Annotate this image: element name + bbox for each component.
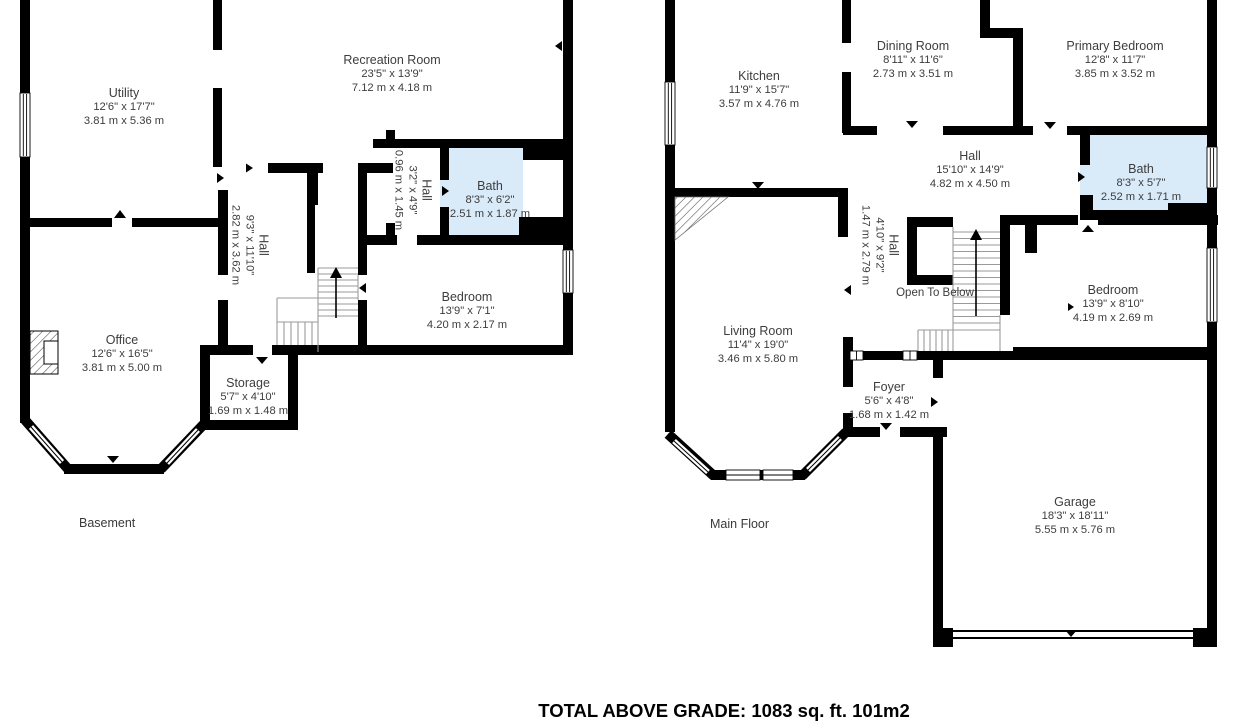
label-open-to-below: Open To Below [896,285,974,301]
room-label-utility: Utility 12'6" x 17'7" 3.81 m x 5.36 m [84,85,164,128]
room-label-living-room: Living Room 11'4" x 19'0" 3.46 m x 5.80 … [718,323,798,366]
room-name: Kitchen [719,68,799,84]
room-label-basement-bath: Bath 8'3" x 6'2" 2.51 m x 1.87 m [450,178,530,221]
room-label-basement-hall-small: Hall 3'2" x 4'9" 0.96 m x 1.45 m [392,150,435,230]
room-name: Office [82,332,162,348]
room-label-basement-bedroom: Bedroom 13'9" x 7'1" 4.20 m x 2.17 m [427,289,507,332]
room-dim-metric: 3.85 m x 3.52 m [1066,68,1163,82]
fireplace-icon [30,331,58,374]
room-dim-imperial: 23'5" x 13'9" [343,68,440,82]
room-dim-metric: 2.82 m x 3.62 m [229,205,243,285]
room-dim-imperial: 12'6" x 17'7" [84,101,164,115]
room-dim-imperial: 3'2" x 4'9" [405,150,419,230]
room-dim-metric: 5.55 m x 5.76 m [1035,524,1115,538]
room-dim-imperial: 11'9" x 15'7" [719,84,799,98]
room-name: Bath [450,178,530,194]
room-dim-metric: 2.52 m x 1.71 m [1101,191,1181,205]
floor-label-basement: Basement [79,516,135,530]
basement-plan [20,0,573,474]
room-name: Hall [256,205,272,285]
room-name: Bath [1101,161,1181,177]
room-dim-imperial: 8'11" x 11'6" [873,54,953,68]
room-dim-imperial: 5'7" x 4'10" [208,391,288,405]
room-name: Hall [930,148,1010,164]
room-label-recreation-room: Recreation Room 23'5" x 13'9" 7.12 m x 4… [343,52,440,95]
room-label-dining-room: Dining Room 8'11" x 11'6" 2.73 m x 3.51 … [873,38,953,81]
room-dim-metric: 4.82 m x 4.50 m [930,178,1010,192]
basement-bay-window [25,420,204,469]
room-name: Utility [84,85,164,101]
room-label-main-hall: Hall 15'10" x 14'9" 4.82 m x 4.50 m [930,148,1010,191]
basement-stairs [277,267,358,352]
room-name: Primary Bedroom [1066,38,1163,54]
room-dim-metric: 4.19 m x 2.69 m [1073,312,1153,326]
room-name: Garage [1035,494,1115,510]
room-dim-imperial: 8'3" x 6'2" [450,194,530,208]
room-label-main-hall-small: Hall 4'10" x 9'2" 1.47 m x 2.79 m [859,205,902,285]
room-name: Foyer [849,379,929,395]
total-above-grade-text: TOTAL ABOVE GRADE: 1083 sq. ft. 101m2 [538,700,909,722]
room-name: Open To Below [896,285,974,301]
room-dim-imperial: 18'3" x 18'11" [1035,510,1115,524]
living-room-bay-window [668,432,846,480]
room-dim-imperial: 8'3" x 5'7" [1101,177,1181,191]
room-name: Living Room [718,323,798,339]
room-label-office: Office 12'6" x 16'5" 3.81 m x 5.00 m [82,332,162,375]
room-dim-imperial: 5'6" x 4'8" [849,395,929,409]
floorplan-geometry [0,0,1240,720]
room-dim-metric: 3.46 m x 5.80 m [718,353,798,367]
room-dim-metric: 2.73 m x 3.51 m [873,68,953,82]
room-dim-metric: 3.81 m x 5.00 m [82,362,162,376]
room-dim-metric: 3.81 m x 5.36 m [84,115,164,129]
room-label-basement-hall: Hall 9'3" x 11'10" 2.82 m x 3.62 m [229,205,272,285]
room-dim-metric: 1.47 m x 2.79 m [859,205,873,285]
floor-label-main-floor: Main Floor [710,517,769,531]
room-label-kitchen: Kitchen 11'9" x 15'7" 3.57 m x 4.76 m [719,68,799,111]
room-name: Storage [208,375,288,391]
room-dim-imperial: 15'10" x 14'9" [930,164,1010,178]
room-dim-imperial: 4'10" x 9'2" [872,205,886,285]
room-dim-imperial: 9'3" x 11'10" [242,205,256,285]
room-dim-metric: 4.20 m x 2.17 m [427,319,507,333]
room-dim-imperial: 11'4" x 19'0" [718,339,798,353]
room-label-main-bedroom: Bedroom 13'9" x 8'10" 4.19 m x 2.69 m [1073,282,1153,325]
room-name: Hall [419,150,435,230]
kitchen-hatched-corner [675,197,728,240]
room-dim-metric: 1.68 m x 1.42 m [849,409,929,423]
room-name: Recreation Room [343,52,440,68]
room-name: Bedroom [1073,282,1153,298]
room-name: Bedroom [427,289,507,305]
room-dim-metric: 1.69 m x 1.48 m [208,405,288,419]
room-dim-imperial: 12'6" x 16'5" [82,348,162,362]
basement-walls [20,0,573,474]
room-label-foyer: Foyer 5'6" x 4'8" 1.68 m x 1.42 m [849,379,929,422]
room-dim-metric: 2.51 m x 1.87 m [450,208,530,222]
room-dim-metric: 0.96 m x 1.45 m [392,150,406,230]
room-dim-imperial: 13'9" x 7'1" [427,305,507,319]
room-dim-metric: 7.12 m x 4.18 m [343,82,440,96]
room-label-primary-bedroom: Primary Bedroom 12'8" x 11'7" 3.85 m x 3… [1066,38,1163,81]
room-label-storage: Storage 5'7" x 4'10" 1.69 m x 1.48 m [208,375,288,418]
room-name: Dining Room [873,38,953,54]
room-label-garage: Garage 18'3" x 18'11" 5.55 m x 5.76 m [1035,494,1115,537]
room-name: Hall [886,205,902,285]
room-dim-imperial: 13'9" x 8'10" [1073,298,1153,312]
basement-door-markers [107,41,562,463]
room-label-main-bath: Bath 8'3" x 5'7" 2.52 m x 1.71 m [1101,161,1181,204]
room-dim-metric: 3.57 m x 4.76 m [719,98,799,112]
room-dim-imperial: 12'8" x 11'7" [1066,54,1163,68]
